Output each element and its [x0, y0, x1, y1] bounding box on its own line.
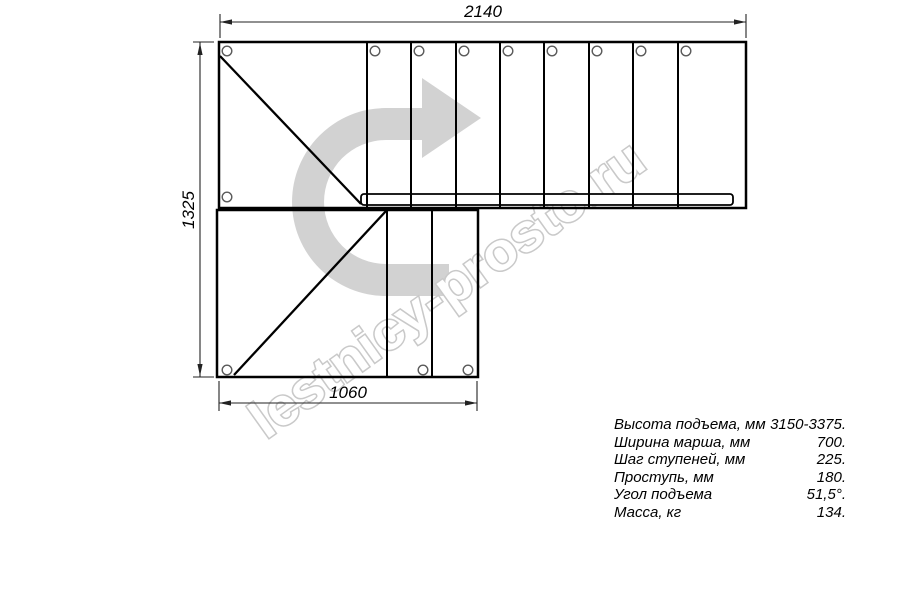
arrowhead-left-icon — [219, 400, 231, 405]
dimension-left-value: 1325 — [179, 191, 198, 229]
arrowhead-right-icon — [465, 400, 477, 405]
spec-value: 3150-3375. — [770, 416, 846, 434]
spec-row-flight-width: Ширина марша, мм 700. — [614, 434, 846, 452]
spec-label: Угол подъема — [614, 486, 712, 504]
spec-label: Масса, кг — [614, 504, 681, 522]
arrowhead-up-icon — [197, 43, 202, 55]
spec-row-height: Высота подъема, мм 3150-3375. — [614, 416, 846, 434]
spec-row-angle: Угол подъема 51,5°. — [614, 486, 846, 504]
arrowhead-right-icon — [734, 19, 746, 24]
spec-label: Шаг ступеней, мм — [614, 451, 745, 469]
dimension-top-value: 2140 — [463, 2, 502, 21]
spec-table: Высота подъема, мм 3150-3375. Ширина мар… — [614, 416, 846, 522]
spec-label: Высота подъема, мм — [614, 416, 766, 434]
spec-value: 180. — [817, 469, 846, 487]
spec-row-mass: Масса, кг 134. — [614, 504, 846, 522]
spec-value: 700. — [817, 434, 846, 452]
spec-value: 134. — [817, 504, 846, 522]
dimension-bottom-value: 1060 — [329, 383, 367, 402]
spec-value: 225. — [817, 451, 846, 469]
spec-label: Ширина марша, мм — [614, 434, 750, 452]
spec-row-step-pitch: Шаг ступеней, мм 225. — [614, 451, 846, 469]
arrowhead-left-icon — [220, 19, 232, 24]
spec-value: 51,5°. — [807, 486, 846, 504]
spec-row-tread: Проступь, мм 180. — [614, 469, 846, 487]
blueprint-canvas: lestnicy-prosto.ru — [0, 0, 900, 600]
arrowhead-down-icon — [197, 364, 202, 376]
spec-label: Проступь, мм — [614, 469, 714, 487]
